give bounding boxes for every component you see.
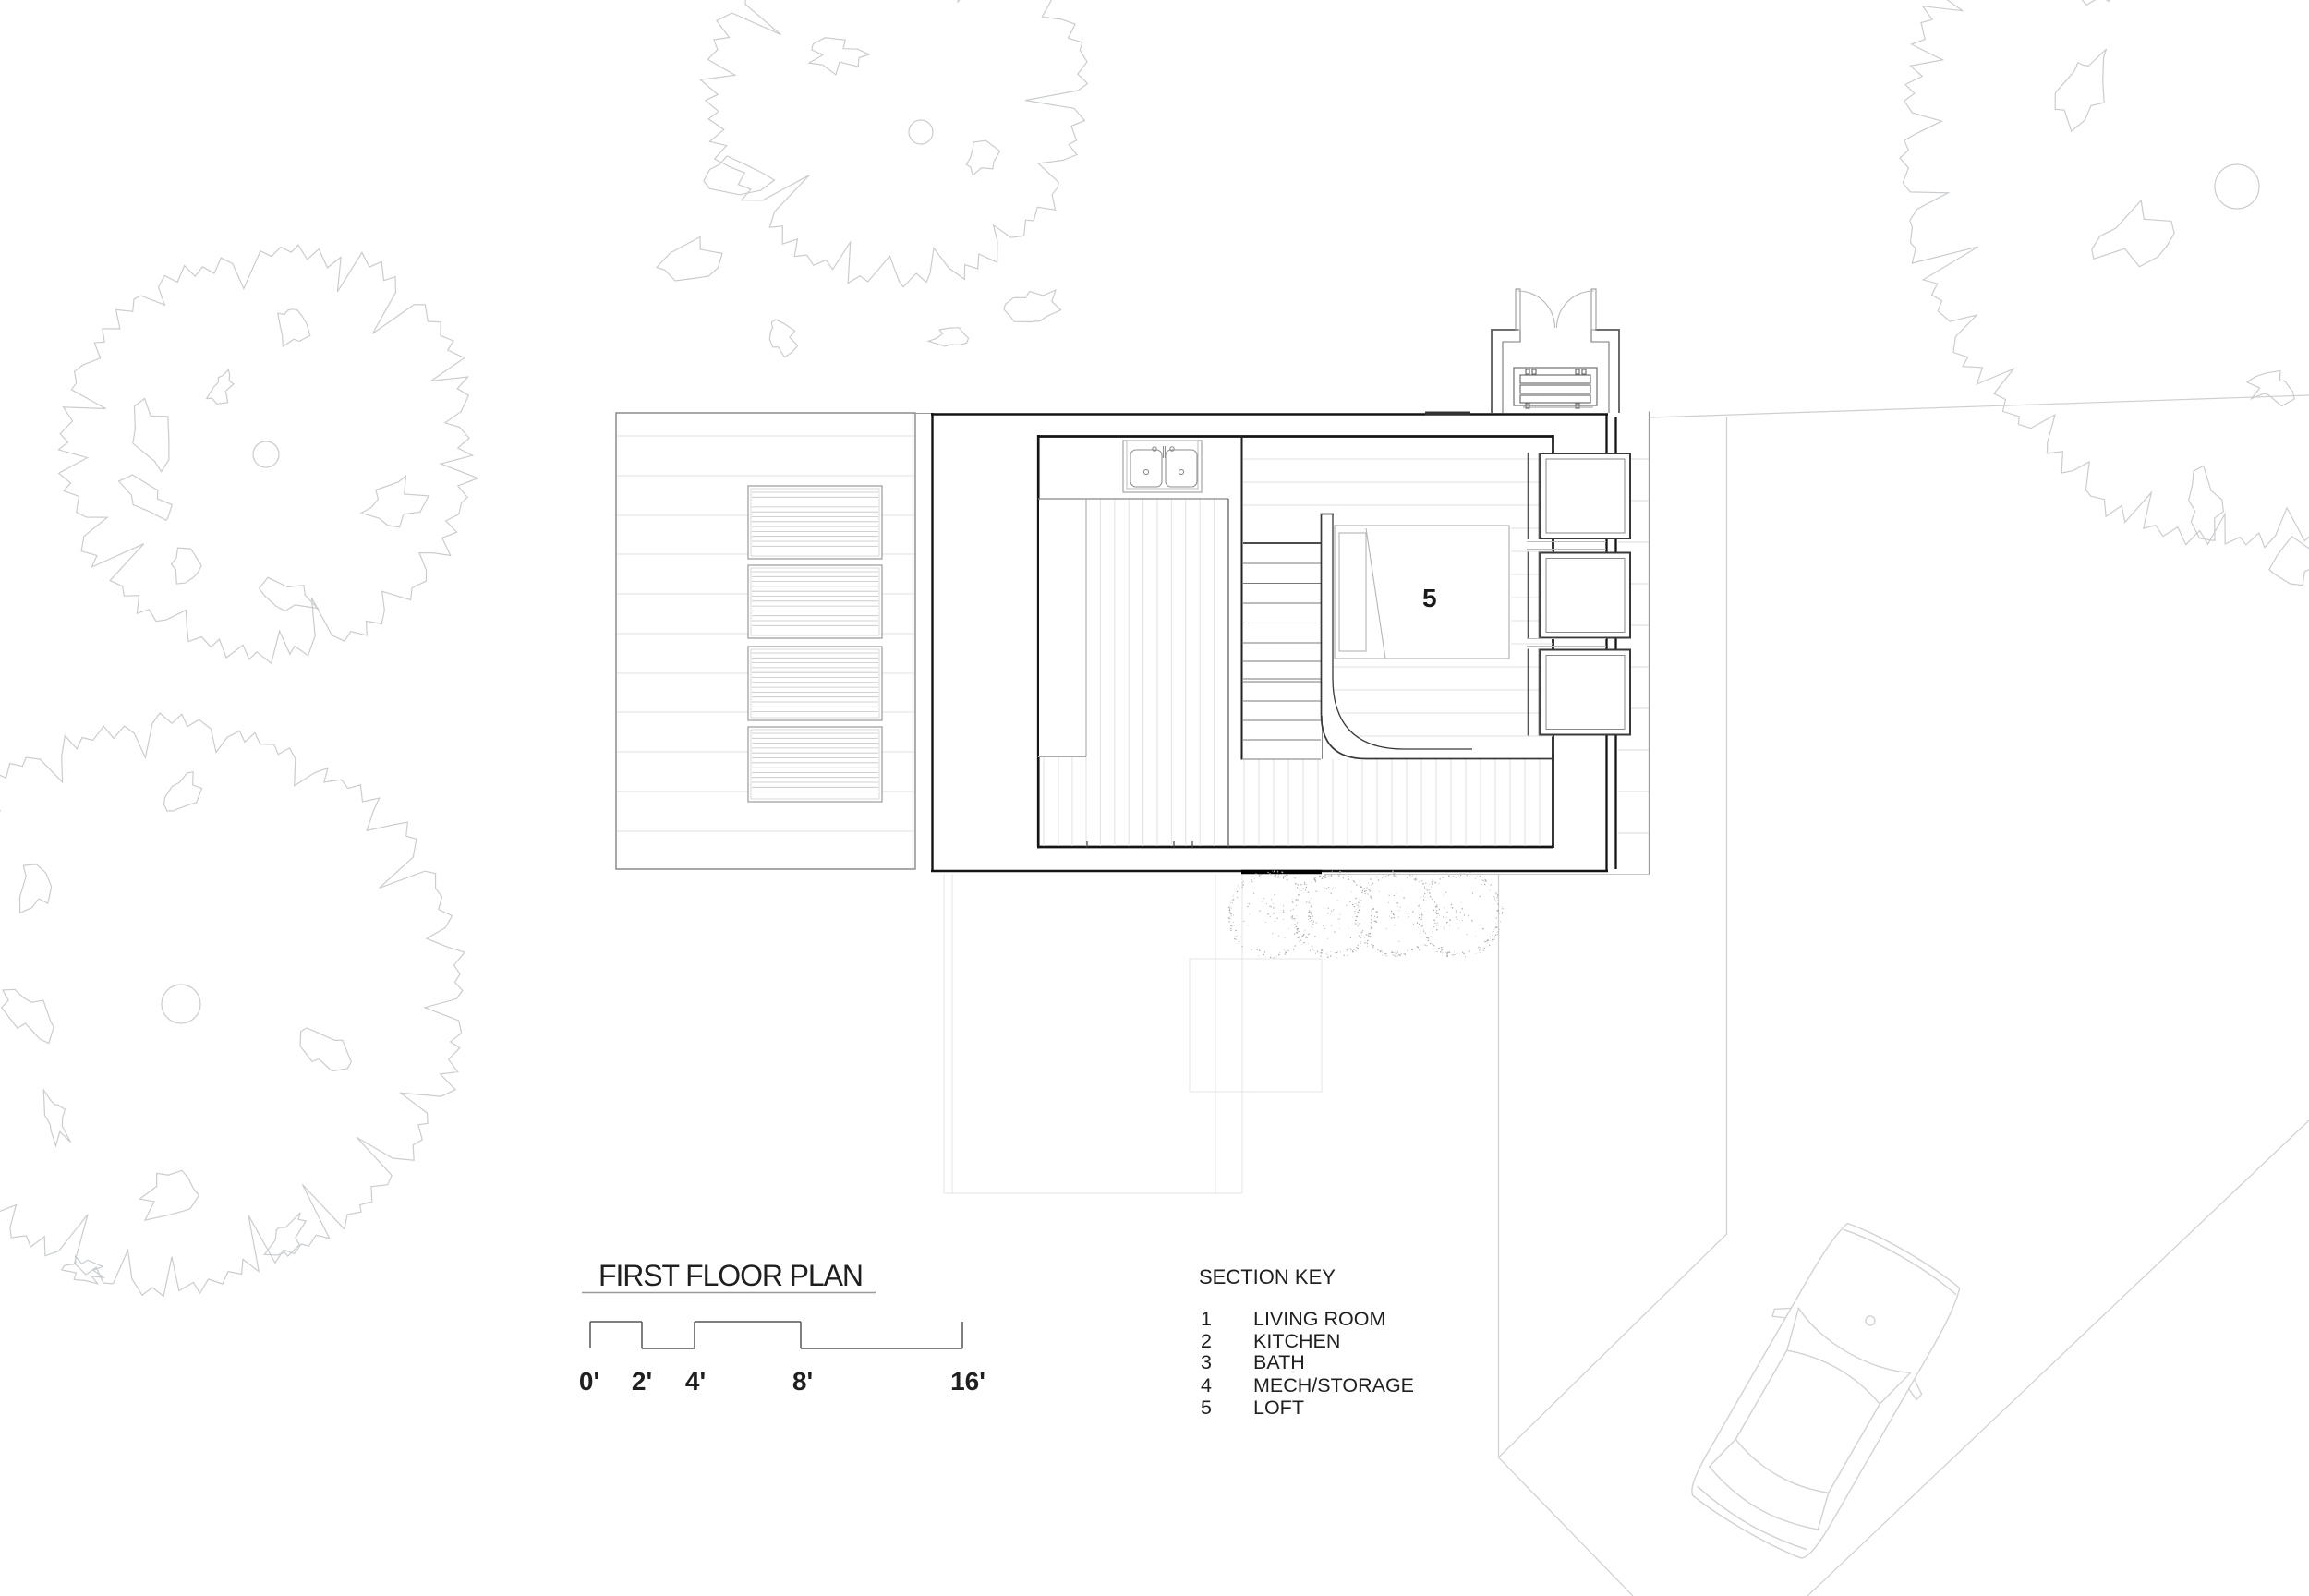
svg-text:8': 8' — [792, 1367, 813, 1396]
svg-text:MECH/STORAGE: MECH/STORAGE — [1253, 1374, 1414, 1396]
svg-text:KITCHEN: KITCHEN — [1253, 1330, 1340, 1352]
svg-text:0': 0' — [579, 1367, 599, 1396]
svg-text:SECTION KEY: SECTION KEY — [1199, 1265, 1336, 1288]
svg-text:3: 3 — [1201, 1351, 1212, 1373]
svg-text:2': 2' — [632, 1367, 652, 1396]
svg-text:16': 16' — [950, 1367, 985, 1396]
svg-text:LOFT: LOFT — [1253, 1396, 1304, 1419]
svg-text:4: 4 — [1201, 1374, 1212, 1396]
svg-text:4': 4' — [685, 1367, 706, 1396]
svg-text:FIRST FLOOR PLAN: FIRST FLOOR PLAN — [598, 1259, 863, 1292]
svg-text:5: 5 — [1422, 584, 1437, 612]
svg-text:1: 1 — [1201, 1308, 1212, 1330]
svg-text:5: 5 — [1201, 1396, 1212, 1419]
svg-text:BATH: BATH — [1253, 1351, 1305, 1373]
svg-text:LIVING ROOM: LIVING ROOM — [1253, 1308, 1385, 1330]
svg-text:2: 2 — [1201, 1330, 1212, 1352]
